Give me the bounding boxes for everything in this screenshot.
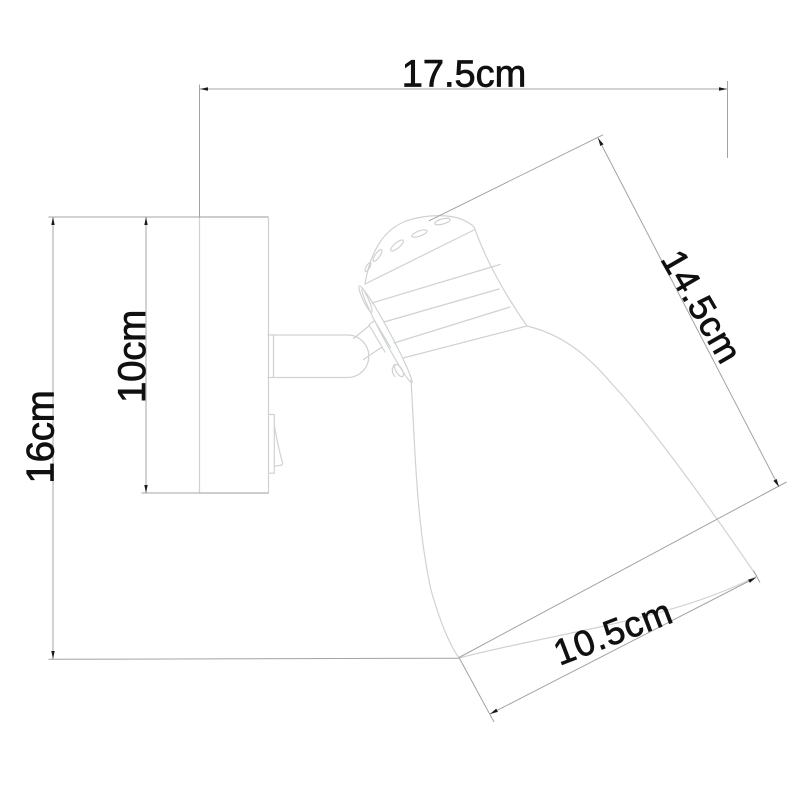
svg-text:16cm: 16cm bbox=[20, 391, 63, 484]
svg-text:10cm: 10cm bbox=[111, 310, 154, 403]
svg-text:17.5cm: 17.5cm bbox=[402, 54, 527, 96]
